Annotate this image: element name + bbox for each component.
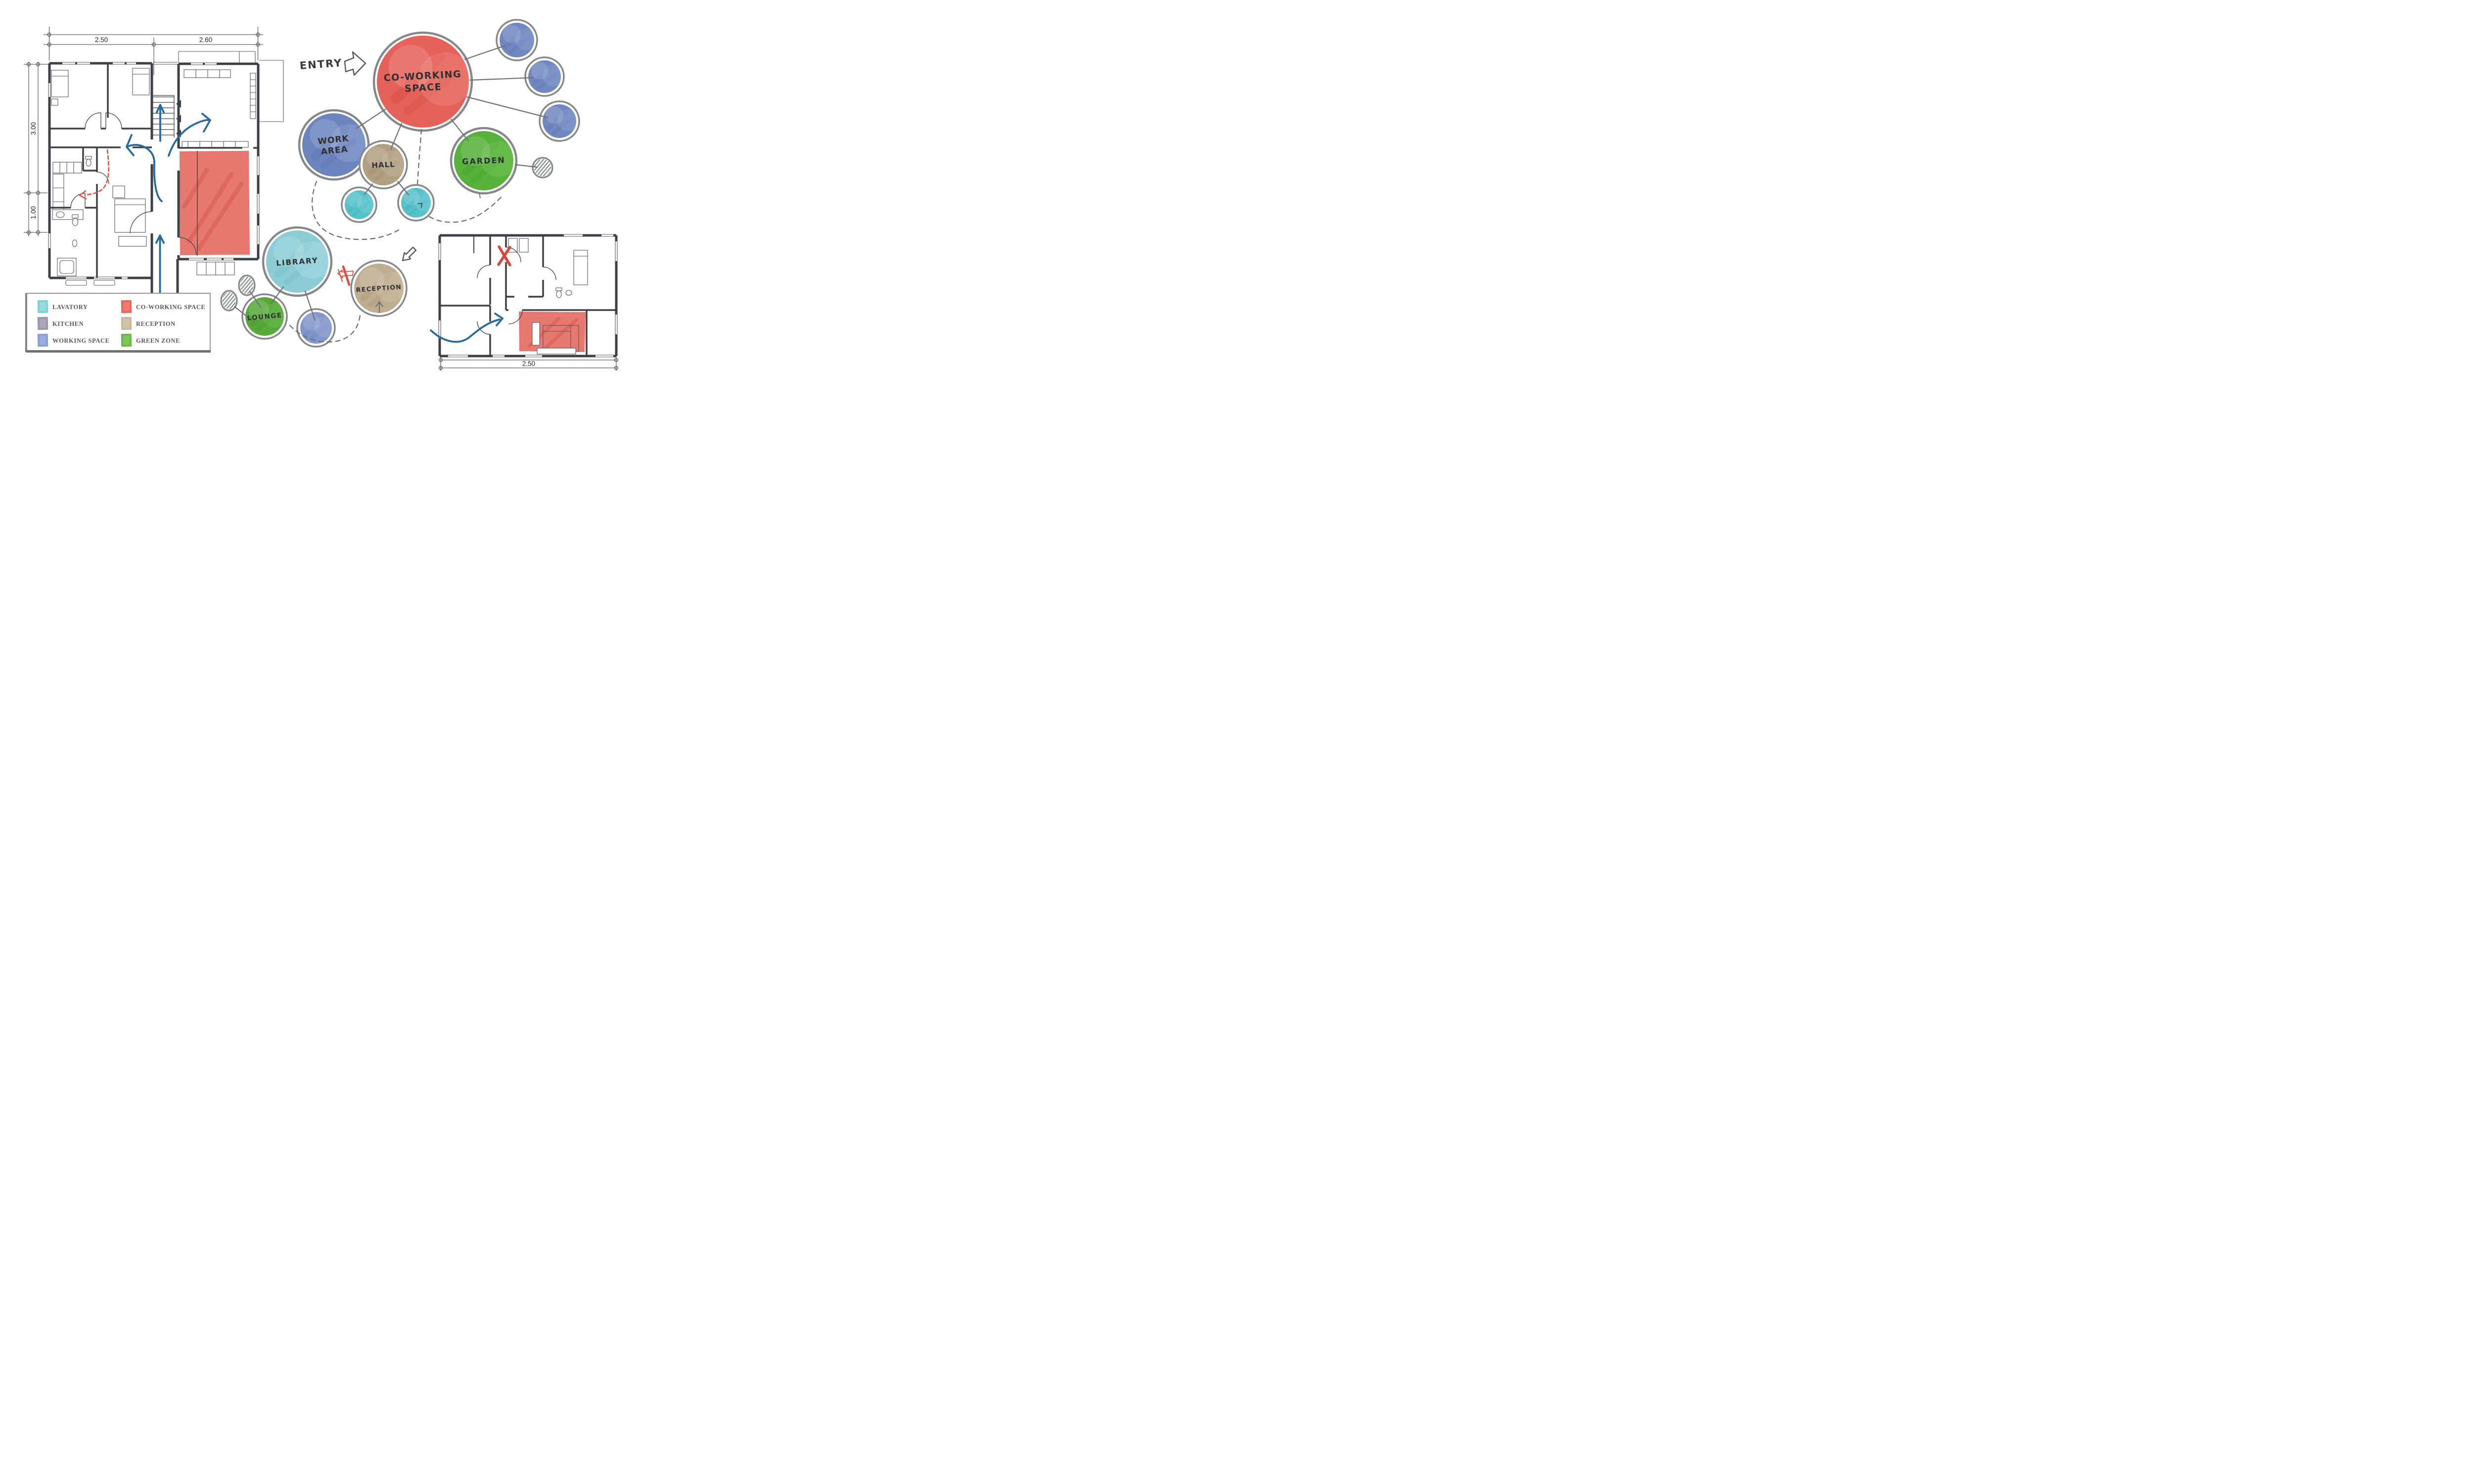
no-connection-icon — [338, 267, 353, 285]
bubble-working-space-1 — [497, 20, 537, 60]
legend-label: WORKING SPACE — [52, 337, 110, 344]
solid-link-6 — [356, 109, 385, 129]
legend-label: GREEN ZONE — [136, 337, 180, 344]
bubble-lavatory-1 — [342, 187, 376, 222]
down-left-arrow-icon — [403, 247, 416, 261]
highlight-co-working-room-2 — [519, 312, 586, 352]
dim-side-upper: 3.00 — [30, 122, 37, 135]
dim-top-right: 2.60 — [199, 36, 212, 44]
legend: LAVATORYKITCHENWORKING SPACECO-WORKING S… — [26, 293, 211, 352]
bubble-working-small — [297, 309, 335, 347]
bubble-label-line: HALL — [371, 160, 395, 170]
curved-right-arrow — [169, 114, 210, 156]
legend-swatch-inner — [123, 302, 130, 311]
bubble-label-hall: HALL — [371, 160, 395, 170]
legend-swatch-inner — [123, 319, 130, 328]
entry-label: ENTRY — [299, 57, 343, 72]
bubble-label-line: GARDEN — [462, 155, 505, 166]
solid-link-3 — [467, 97, 548, 118]
stairs — [153, 95, 181, 137]
solid-link-1 — [465, 45, 505, 59]
entry-arrow-icon — [345, 52, 366, 75]
hatched-circle-1 — [513, 156, 571, 180]
floor-plan-right: 2.50 — [431, 234, 618, 371]
bubble-diagram-bodies — [199, 20, 579, 347]
legend-swatch-inner — [123, 336, 130, 345]
concept-diagram-page: 2.50 2.60 3.00 1.00 — [0, 0, 618, 371]
legend-label: CO-WORKING SPACE — [136, 304, 205, 311]
dashed-link-3 — [429, 195, 503, 222]
dashed-link-1 — [417, 130, 421, 184]
solid-link-2 — [470, 78, 533, 80]
bubble-label-garden: GARDEN — [462, 155, 505, 166]
legend-swatch-inner — [40, 336, 46, 345]
bubble-working-space-3 — [540, 101, 579, 141]
diagram-canvas: 2.50 2.60 3.00 1.00 — [0, 0, 618, 371]
curved-left-arrow — [127, 135, 162, 201]
bubble-lavatory-2 — [398, 185, 434, 221]
bubble-label-work-area: WORKAREA — [317, 134, 350, 157]
legend-label: KITCHEN — [52, 320, 84, 327]
stairs-up-arrow — [157, 105, 164, 141]
legend-swatch-inner — [40, 319, 46, 328]
legend-label: LAVATORY — [52, 304, 88, 311]
legend-swatch-inner — [40, 302, 46, 311]
dim-bottom-right: 2.50 — [522, 360, 535, 367]
bubble-label-line: SPACE — [405, 82, 442, 94]
dim-side-lower: 1.00 — [30, 206, 37, 219]
red-x-mark — [499, 247, 510, 265]
bubble-working-space-2 — [525, 57, 564, 96]
highlight-co-working-room — [180, 151, 250, 255]
legend-label: RECEPTION — [136, 320, 176, 327]
entry-path-arrow — [431, 314, 503, 342]
dim-top-left: 2.50 — [95, 36, 108, 44]
